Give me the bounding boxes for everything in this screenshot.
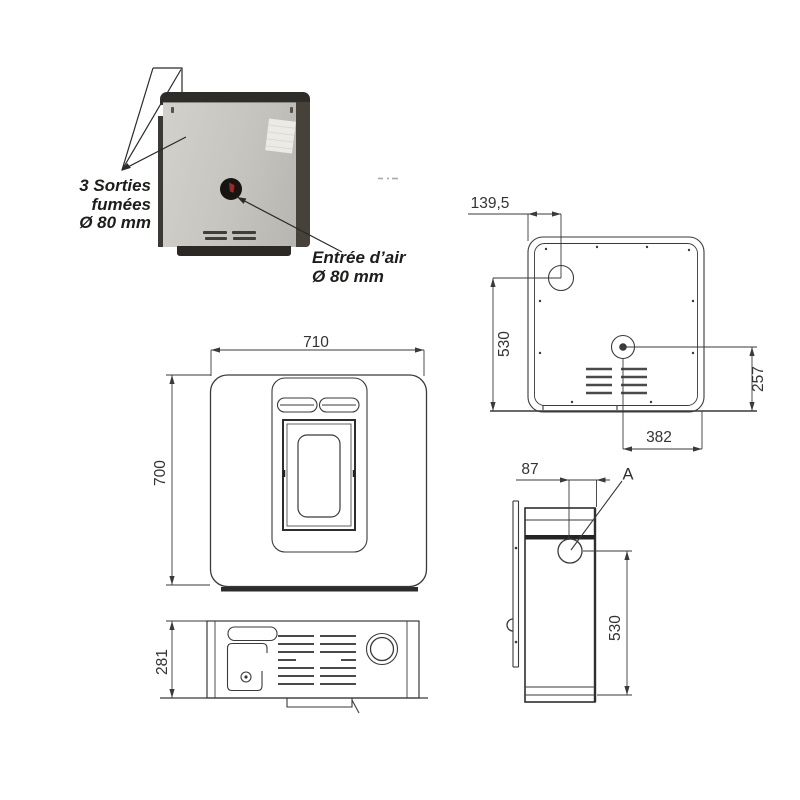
smoke-outlets-annotation: 3 Sorties fumées Ø 80 mm [79,177,151,233]
front-vent-slot [278,398,318,412]
screw-icon [290,107,293,113]
air-inlet-circle [612,336,635,359]
stove-right-edge [296,102,310,247]
dim-front-width: 710 [303,334,329,352]
air-inlet-hole [220,178,242,200]
top-view-drawing [160,621,428,713]
top-slot [228,627,277,641]
dim-lines-rear-right [623,347,757,411]
lid-knob [241,672,251,682]
dim-front-height: 700 [152,460,170,486]
side-view-drawing [507,477,632,702]
air-inlet-cap-icon [228,181,236,193]
technical-drawing-sheet: 3 Sorties fumées Ø 80 mm Entrée d’air Ø … [0,0,800,800]
flue-collar-inner [371,638,394,661]
dim-lines-side-offset [516,477,610,540]
annotation-line: Ø 80 mm [312,268,406,287]
detail-label-a: A [622,466,633,485]
dim-rear-left: 530 [496,331,514,357]
front-door [283,420,355,530]
top-grille [278,636,356,684]
dim-lines-rear-top [468,211,561,278]
dim-lines-front-height [166,375,211,585]
annotation-line: fumées [79,196,151,215]
rear-vents [586,369,647,393]
door-window [298,435,340,517]
hopper-lid-outline [228,644,268,691]
dim-side-height: 530 [607,615,625,641]
annotation-line: Ø 80 mm [79,214,151,233]
annotation-line: 3 Sorties [79,177,151,196]
side-flue-circle [558,539,582,563]
dim-rear-right: 257 [750,366,768,392]
door-handle [507,619,513,631]
vent-slot [205,237,227,240]
linework-layer [0,0,800,800]
screw-icon [171,107,174,113]
front-vent-slot [320,398,360,412]
air-inlet-annotation: Entrée d’air Ø 80 mm [312,249,406,286]
vent-slot [232,231,256,234]
side-top-band [525,535,595,540]
annotation-line: Entrée d’air [312,249,406,268]
dim-rear-top: 139,5 [471,195,510,213]
stove-base [177,246,291,256]
rating-label [265,118,296,153]
dim-rear-bottom: 382 [646,429,672,447]
vent-slot [233,237,256,240]
detail-a-leader [571,481,622,550]
vent-slot [203,231,227,234]
flue-collar-outer [367,634,398,665]
front-base-bar [221,587,418,592]
flue-outlet-circle [549,266,574,291]
front-view-drawing [166,347,427,591]
support-bracket [287,698,352,707]
dim-lines-top-depth [166,621,207,698]
dim-side-offset: 87 [521,461,538,479]
dim-top-depth: 281 [154,649,172,675]
screw-dots [539,246,694,403]
